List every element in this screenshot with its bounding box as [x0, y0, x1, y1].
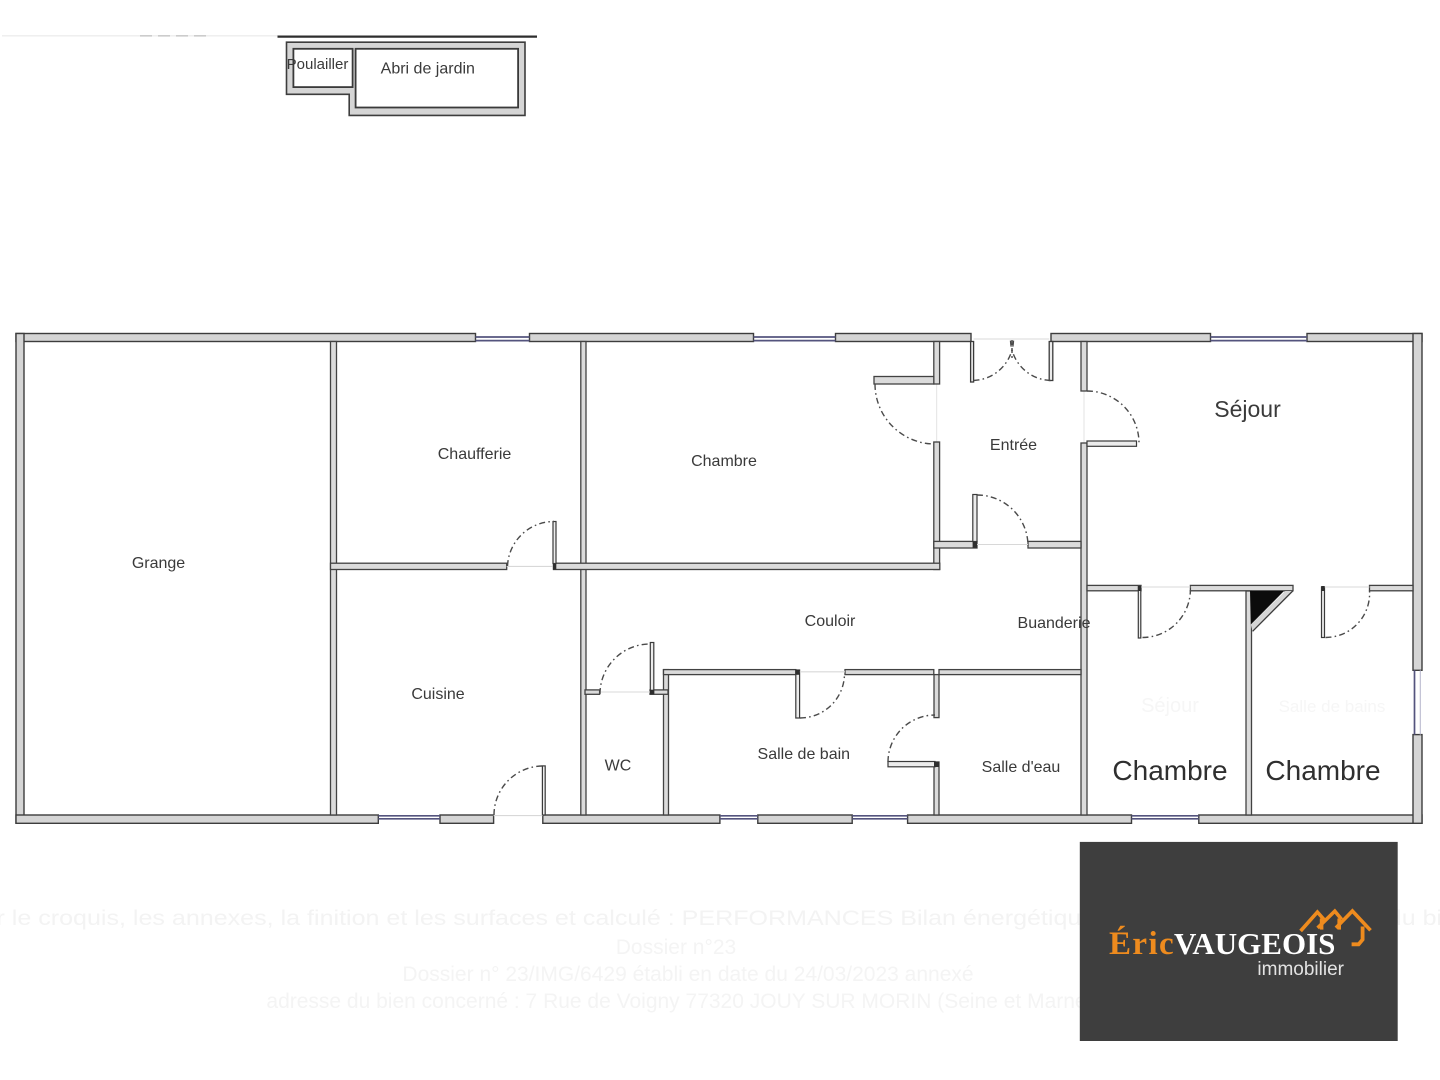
svg-text:Chambre: Chambre	[691, 453, 757, 470]
svg-text:Chambre: Chambre	[1265, 755, 1380, 786]
svg-text:Salle de bain: Salle de bain	[758, 746, 851, 763]
svg-text:Salle de bains: Salle de bains	[1279, 697, 1386, 716]
svg-text:immobilier: immobilier	[1257, 959, 1344, 980]
svg-text:Entrée: Entrée	[990, 437, 1037, 454]
svg-text:Chaufferie: Chaufferie	[438, 446, 512, 463]
svg-text:Chambre: Chambre	[1112, 755, 1227, 786]
svg-text:Dossier n°23: Dossier n°23	[616, 936, 736, 959]
svg-text:adresse du bien concerné : 7 R: adresse du bien concerné : 7 Rue de Voig…	[266, 990, 1093, 1013]
svg-text:Séjour: Séjour	[1141, 695, 1199, 717]
svg-text:Couloir: Couloir	[805, 613, 856, 630]
svg-text:VAUGEOIS: VAUGEOIS	[1174, 926, 1335, 961]
svg-text:Dossier n° 23/IMG/6429 établi: Dossier n° 23/IMG/6429 établi en date du…	[402, 963, 973, 986]
svg-text:Buanderie: Buanderie	[1018, 615, 1091, 632]
svg-text:Abri de jardin: Abri de jardin	[381, 61, 475, 78]
svg-text:Séjour: Séjour	[1214, 396, 1281, 422]
svg-text:Éric: Éric	[1109, 925, 1175, 962]
svg-text:Salle d'eau: Salle d'eau	[982, 759, 1061, 776]
svg-text:Poulailler: Poulailler	[287, 56, 349, 73]
svg-text:Cuisine: Cuisine	[411, 686, 464, 703]
svg-text:WC: WC	[605, 758, 632, 775]
svg-text:Grange: Grange	[132, 555, 185, 572]
